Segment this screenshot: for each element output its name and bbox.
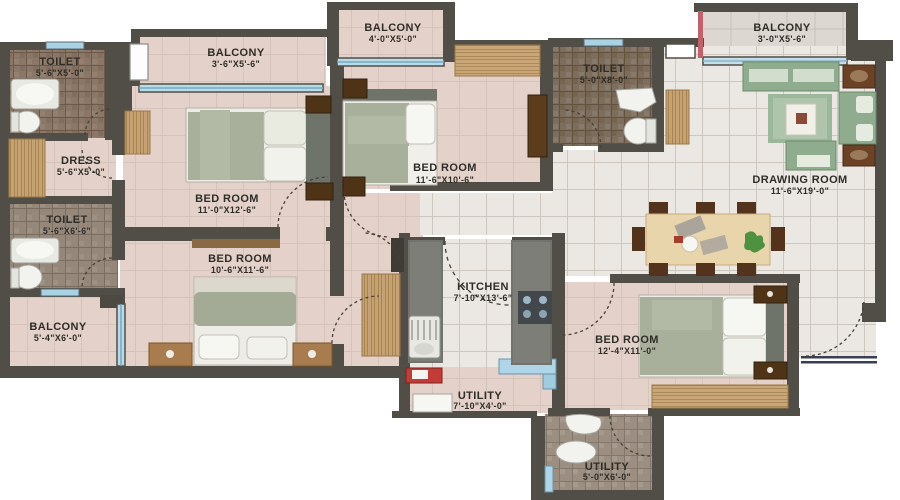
svg-text:BALCONY: BALCONY: [364, 22, 421, 34]
svg-text:BED ROOM: BED ROOM: [413, 162, 477, 174]
svg-text:TOILET: TOILET: [46, 214, 87, 226]
svg-text:7'-10"X13'-6": 7'-10"X13'-6": [454, 293, 513, 303]
svg-text:4'-0"X5'-0": 4'-0"X5'-0": [369, 34, 417, 44]
svg-text:TOILET: TOILET: [39, 56, 80, 68]
svg-text:10'-6"X11'-6": 10'-6"X11'-6": [211, 265, 269, 275]
svg-text:5'-0"X8'-0": 5'-0"X8'-0": [580, 75, 628, 85]
svg-text:3'-0"X5'-6": 3'-0"X5'-6": [758, 34, 806, 44]
svg-text:5'-6"X6'-6": 5'-6"X6'-6": [43, 226, 91, 236]
svg-text:DRAWING ROOM: DRAWING ROOM: [752, 174, 847, 186]
svg-text:BALCONY: BALCONY: [207, 47, 264, 59]
svg-text:BALCONY: BALCONY: [753, 22, 810, 34]
svg-text:BALCONY: BALCONY: [29, 321, 86, 333]
svg-text:3'-6"X5'-6": 3'-6"X5'-6": [212, 59, 260, 69]
svg-text:5'-0"X6'-0": 5'-0"X6'-0": [583, 472, 631, 482]
svg-text:11'-6"X10'-6": 11'-6"X10'-6": [416, 175, 474, 185]
svg-text:11'-6"X19'-0": 11'-6"X19'-0": [771, 186, 829, 196]
svg-text:5'-6"X5'-0": 5'-6"X5'-0": [36, 68, 84, 78]
svg-text:KITCHEN: KITCHEN: [457, 281, 509, 293]
svg-text:TOILET: TOILET: [583, 63, 624, 75]
svg-text:7'-10"X4'-0": 7'-10"X4'-0": [453, 401, 507, 411]
svg-text:11'-0"X12'-6": 11'-0"X12'-6": [198, 205, 256, 215]
svg-text:BED ROOM: BED ROOM: [595, 334, 659, 346]
svg-text:5'-4"X6'-0": 5'-4"X6'-0": [34, 333, 82, 343]
svg-text:BED ROOM: BED ROOM: [195, 193, 259, 205]
svg-text:5'-6"X5'-0": 5'-6"X5'-0": [57, 167, 105, 177]
svg-text:12'-4"X11'-0": 12'-4"X11'-0": [598, 346, 656, 356]
svg-text:BED ROOM: BED ROOM: [208, 253, 272, 265]
svg-text:DRESS: DRESS: [61, 155, 101, 167]
